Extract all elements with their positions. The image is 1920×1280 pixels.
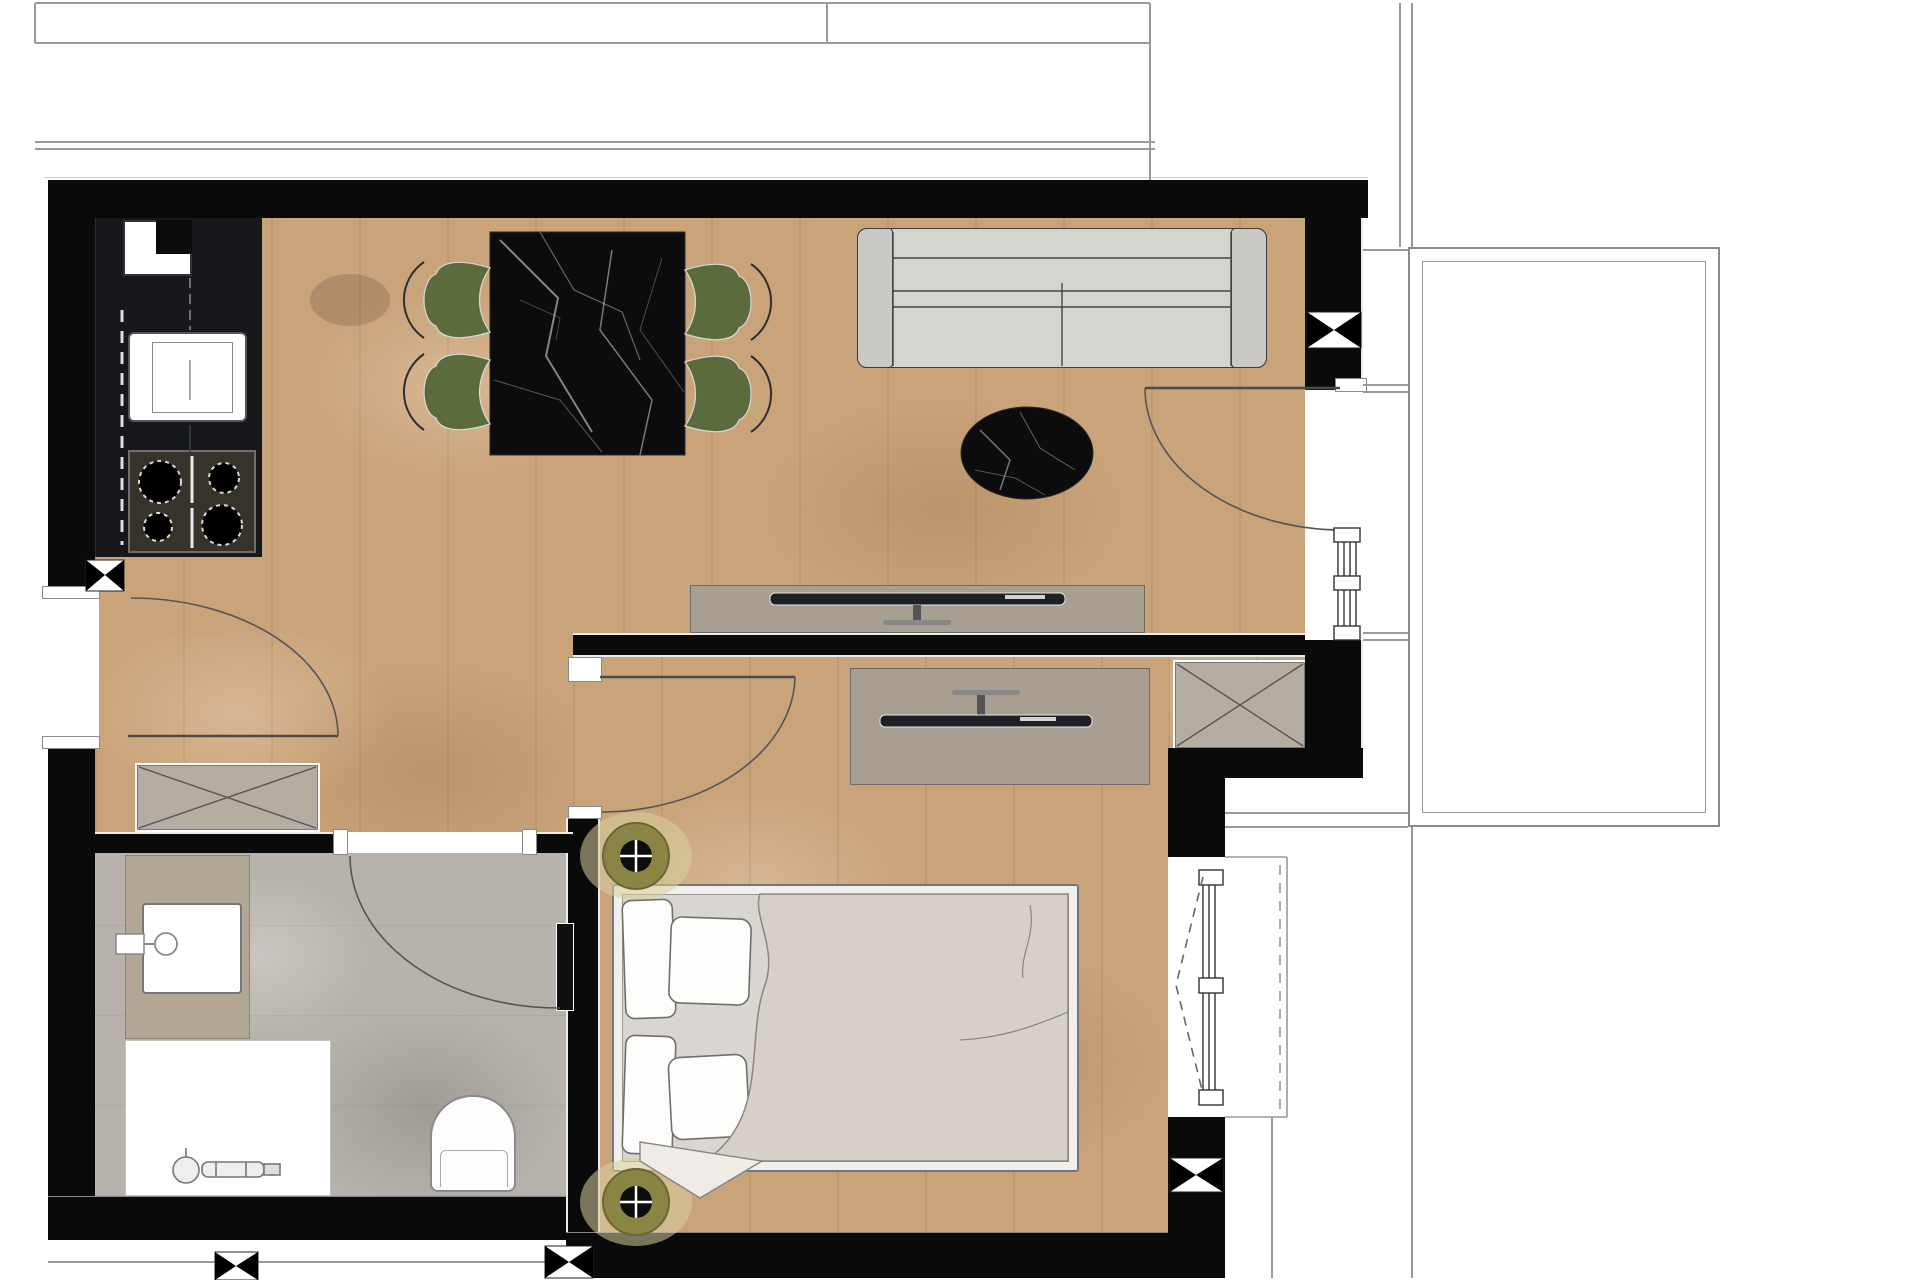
wall-east-bedroom-upper (1168, 778, 1225, 857)
sofa (857, 228, 1267, 368)
sofa-arm-right (1231, 228, 1267, 368)
entry-door-opening (44, 597, 99, 736)
wall-partition-living-bedroom (573, 633, 1305, 657)
wall-south-bathroom (48, 1196, 566, 1240)
cooktop (128, 450, 256, 553)
balcony-outline-inner (1422, 261, 1706, 813)
entry-jamb-bottom (42, 736, 100, 749)
wall-east-living-upper (1305, 218, 1363, 390)
entry-jamb-top (42, 586, 100, 599)
bedroom-jamb-top (568, 657, 602, 682)
wall-divider-bath-bedroom (566, 818, 600, 1232)
toilet-seat-line (440, 1150, 508, 1187)
wall-west-lower (48, 738, 95, 1240)
bed-mattress (622, 894, 1069, 1162)
bathroom-basin (142, 903, 242, 994)
balcony-door-opening (1307, 392, 1368, 528)
bathroom-door-leaf (556, 923, 574, 1011)
wardrobe-bedroom (1175, 662, 1305, 748)
wall-east-bedroom-lower (1168, 1117, 1225, 1278)
kitchen-sink-basin (152, 342, 233, 413)
bathroom-jamb-right (522, 829, 537, 855)
living-window-opening (1305, 528, 1368, 640)
balcony-door-jamb-top (1335, 378, 1367, 392)
shower-tray (125, 1040, 331, 1196)
wall-west-upper (48, 180, 95, 595)
sofa-arm-left (857, 228, 893, 368)
bathroom-jamb-left (333, 829, 348, 855)
bedroom-jamb-bottom (568, 806, 602, 819)
kitchen-appliance-block (156, 220, 192, 254)
floor-plan (0, 0, 1920, 1280)
wardrobe-hallway (137, 765, 318, 830)
bedroom-window-opening (1168, 857, 1225, 1117)
wall-edge-top (44, 177, 1368, 178)
wall-north (48, 180, 1368, 218)
wall-south-bedroom (566, 1232, 1225, 1278)
bathroom-door-opening (347, 832, 523, 853)
tv-sideboard-living (690, 585, 1145, 633)
wall-step-ne (1168, 748, 1363, 778)
bowtie-south-1 (215, 1252, 258, 1280)
tv-sideboard-bedroom (850, 668, 1150, 785)
